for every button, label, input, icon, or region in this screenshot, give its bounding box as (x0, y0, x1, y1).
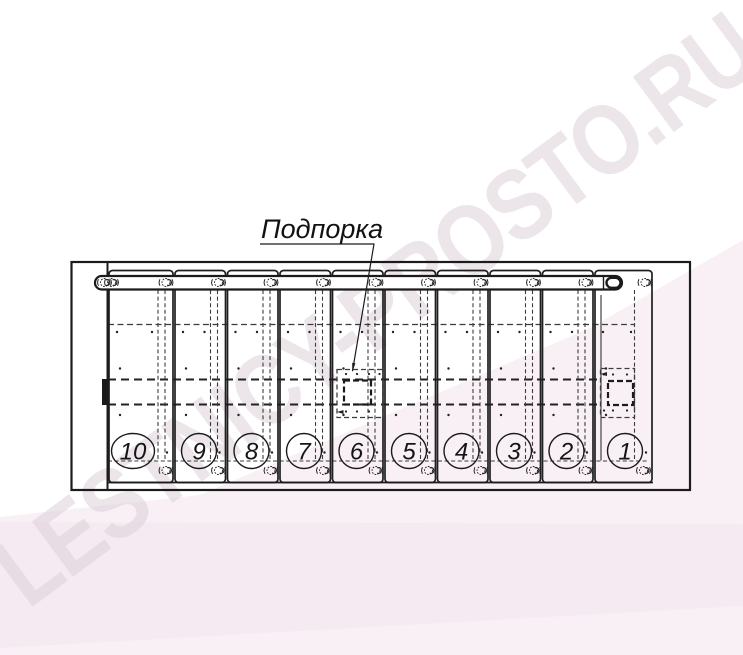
bolt-dot (237, 367, 239, 369)
bolt-dot (630, 331, 632, 333)
bolt-dot (392, 331, 394, 333)
bolt-dot (376, 451, 378, 453)
callout-label: Подпорка (261, 214, 383, 244)
bolt-dot (290, 414, 292, 416)
bolt-dot (533, 451, 535, 453)
bolt-dot (395, 367, 397, 369)
bolt-dot (185, 367, 187, 369)
bolt-dot (500, 367, 502, 369)
bolt-dot (339, 331, 341, 333)
bolt-dot (119, 367, 121, 369)
bolt-dot (500, 414, 502, 416)
bolt-dot (518, 331, 520, 333)
top-rail (95, 276, 622, 290)
bolt-dot (605, 414, 607, 416)
support-beam-end-cap (102, 379, 108, 405)
bolt-dot (361, 331, 363, 333)
bolt-dot (234, 331, 236, 333)
bolt-dot (605, 367, 607, 369)
bolt-dot (166, 451, 168, 453)
bolt-dot (287, 331, 289, 333)
screw-side-arc (651, 279, 652, 285)
bolt-dot (571, 331, 573, 333)
staircase-plan-page: LESTNICY-PROSTO.RU (0, 0, 743, 655)
bolt-dot (395, 414, 397, 416)
step-number: 10 (120, 439, 147, 466)
bolt-dot (447, 414, 449, 416)
bolt-dot (481, 451, 483, 453)
bolt-dot (466, 331, 468, 333)
bolt-dot (602, 331, 604, 333)
step-number: 5 (402, 439, 416, 466)
bolt-dot (552, 367, 554, 369)
top-rail-end-pin (607, 278, 621, 288)
bolt-dot (116, 331, 118, 333)
step-number: 4 (455, 439, 468, 466)
step-number: 1 (618, 439, 631, 466)
bolt-dot (290, 367, 292, 369)
bolt-dot (218, 451, 220, 453)
staircase-plan-drawing: LESTNICY-PROSTO.RU (0, 0, 743, 655)
bolt-dot (308, 331, 310, 333)
step-number: 6 (350, 439, 364, 466)
bolt-dot (428, 451, 430, 453)
bolt-dot (342, 414, 344, 416)
bolt-dot (182, 331, 184, 333)
bolt-dot (185, 414, 187, 416)
top-rail-bar (95, 276, 622, 290)
bolt-dot (549, 331, 551, 333)
support-square-mid-arrow (337, 410, 344, 414)
bolt-dot (447, 367, 449, 369)
bolt-dot (271, 451, 273, 453)
bolt-dot (237, 414, 239, 416)
step-number: 2 (559, 439, 573, 466)
step-number: 8 (245, 439, 259, 466)
bolt-dot (151, 331, 153, 333)
bolt-dot (342, 367, 344, 369)
bolt-dot (323, 451, 325, 453)
screw-icon (638, 279, 652, 287)
step-number: 7 (297, 439, 312, 466)
bolt-dot (119, 414, 121, 416)
bolt-dot (586, 451, 588, 453)
bolt-dot (645, 451, 647, 453)
bolt-dot (497, 331, 499, 333)
bolt-dot (552, 414, 554, 416)
bolt-dot (256, 331, 258, 333)
bolt-dot (444, 331, 446, 333)
screw-side-arc (638, 279, 639, 285)
step-number: 9 (192, 439, 205, 466)
bolt-dot (203, 331, 205, 333)
bolt-dot (413, 331, 415, 333)
step-number: 3 (507, 439, 521, 466)
